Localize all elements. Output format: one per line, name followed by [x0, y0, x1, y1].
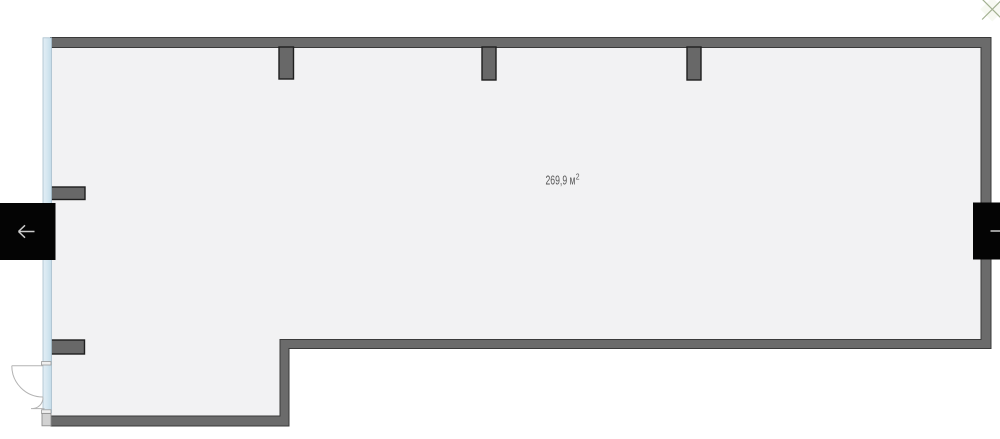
svg-text:2: 2: [576, 173, 580, 182]
svg-text:269,9 м: 269,9 м: [546, 174, 576, 188]
